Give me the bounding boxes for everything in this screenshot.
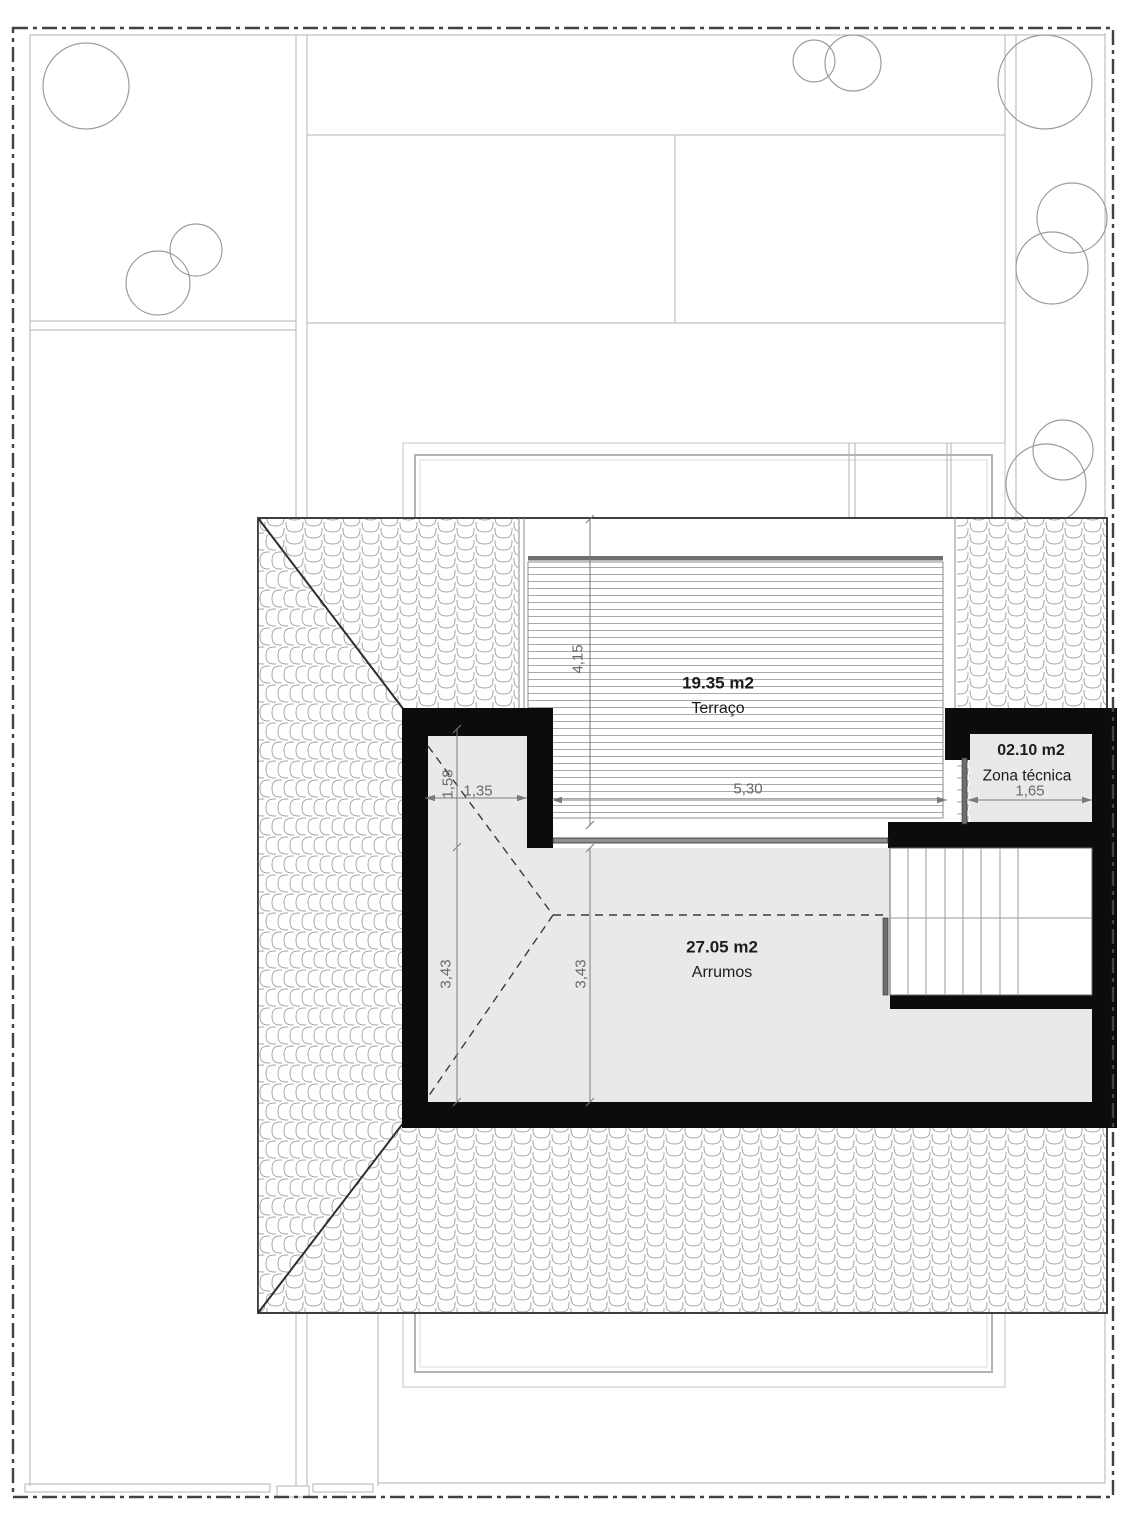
dimension-closet-depth: 1,58: [441, 769, 456, 798]
dimension-terrace-width: 5,30: [733, 782, 762, 797]
terraco-area-label: 19.35 m2: [682, 675, 754, 692]
dimension-closet-width: 1,35: [463, 784, 492, 799]
stairs-door: [883, 918, 888, 995]
zona-tecnica-name-label: Zona técnica: [983, 768, 1072, 784]
floor-plan: 19.35 m2 Terraço 27.05 m2 Arrumos 02.10 …: [0, 0, 1125, 1526]
stairs: [890, 848, 1092, 995]
terraco-name-label: Terraço: [691, 701, 744, 717]
plan-canvas: [0, 0, 1125, 1526]
dimension-zona-tecnica-width: 1,65: [1015, 784, 1044, 799]
dimension-arrumos-depth-mid: 3,43: [574, 959, 589, 988]
dimension-terrace-depth: 4,15: [571, 644, 586, 673]
arrumos-name-label: Arrumos: [692, 965, 752, 981]
terrace-window: [553, 838, 888, 843]
arrumos-area-label: 27.05 m2: [686, 939, 758, 956]
dimension-arrumos-depth-left: 3,43: [439, 959, 454, 988]
zona-tecnica-area-label: 02.10 m2: [997, 743, 1065, 759]
zona-tecnica-door: [962, 758, 967, 824]
